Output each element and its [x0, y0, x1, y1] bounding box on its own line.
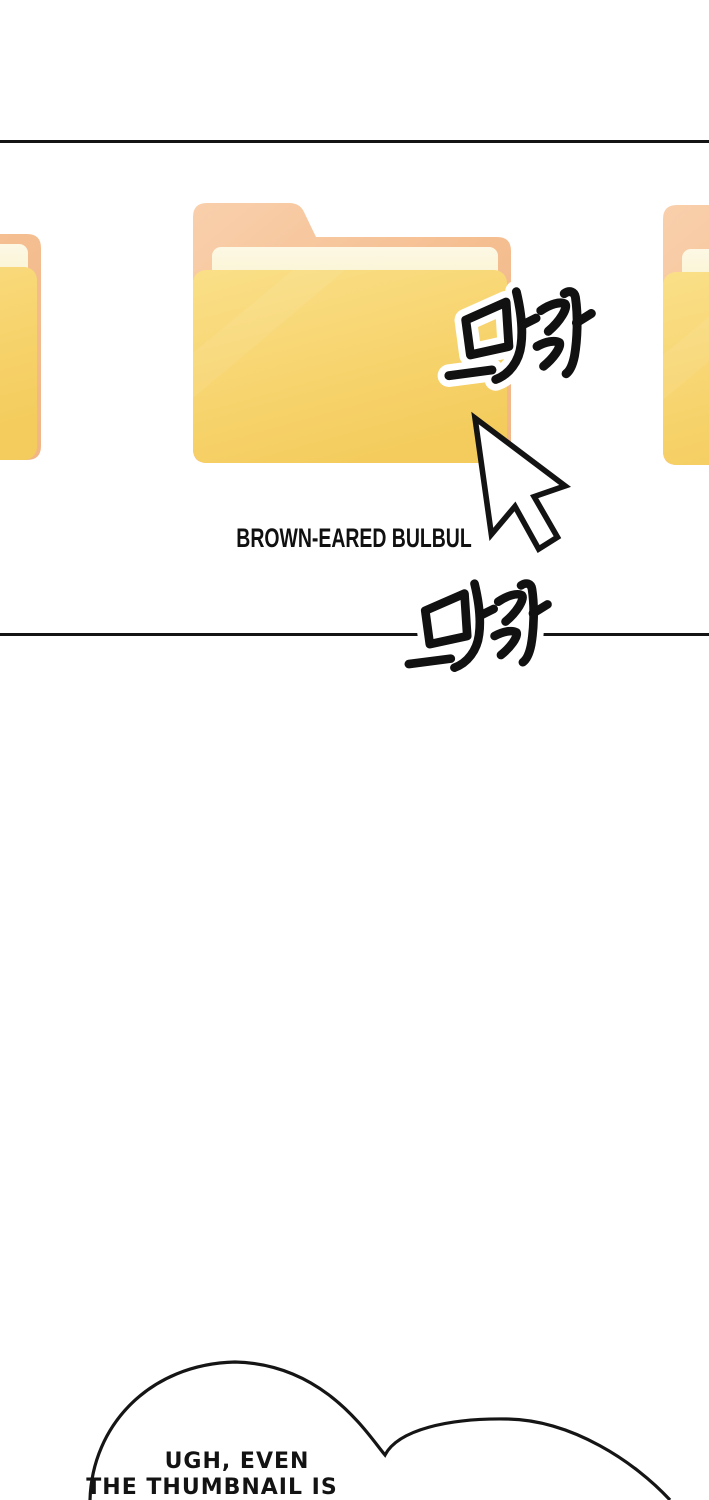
- folder-icon-left-partial: [0, 200, 43, 460]
- webtoon-page: BROWN-EARED BULBUL UGH, EVEN THE THUMBNA…: [0, 0, 709, 1500]
- mouse-cursor-icon: [452, 410, 572, 560]
- speech-text-line-1: UGH, EVEN: [165, 1449, 310, 1474]
- panel-border-bottom: [0, 633, 709, 636]
- folder-name-text: BROWN-EARED BULBUL: [236, 526, 471, 550]
- sfx-click-sound-2: [407, 580, 553, 674]
- sfx-click-sound-1: [447, 288, 597, 386]
- panel-border-top: [0, 140, 709, 143]
- speech-text-line-2: THE THUMBNAIL IS: [86, 1475, 337, 1500]
- folder-icon-right-partial: [663, 205, 709, 465]
